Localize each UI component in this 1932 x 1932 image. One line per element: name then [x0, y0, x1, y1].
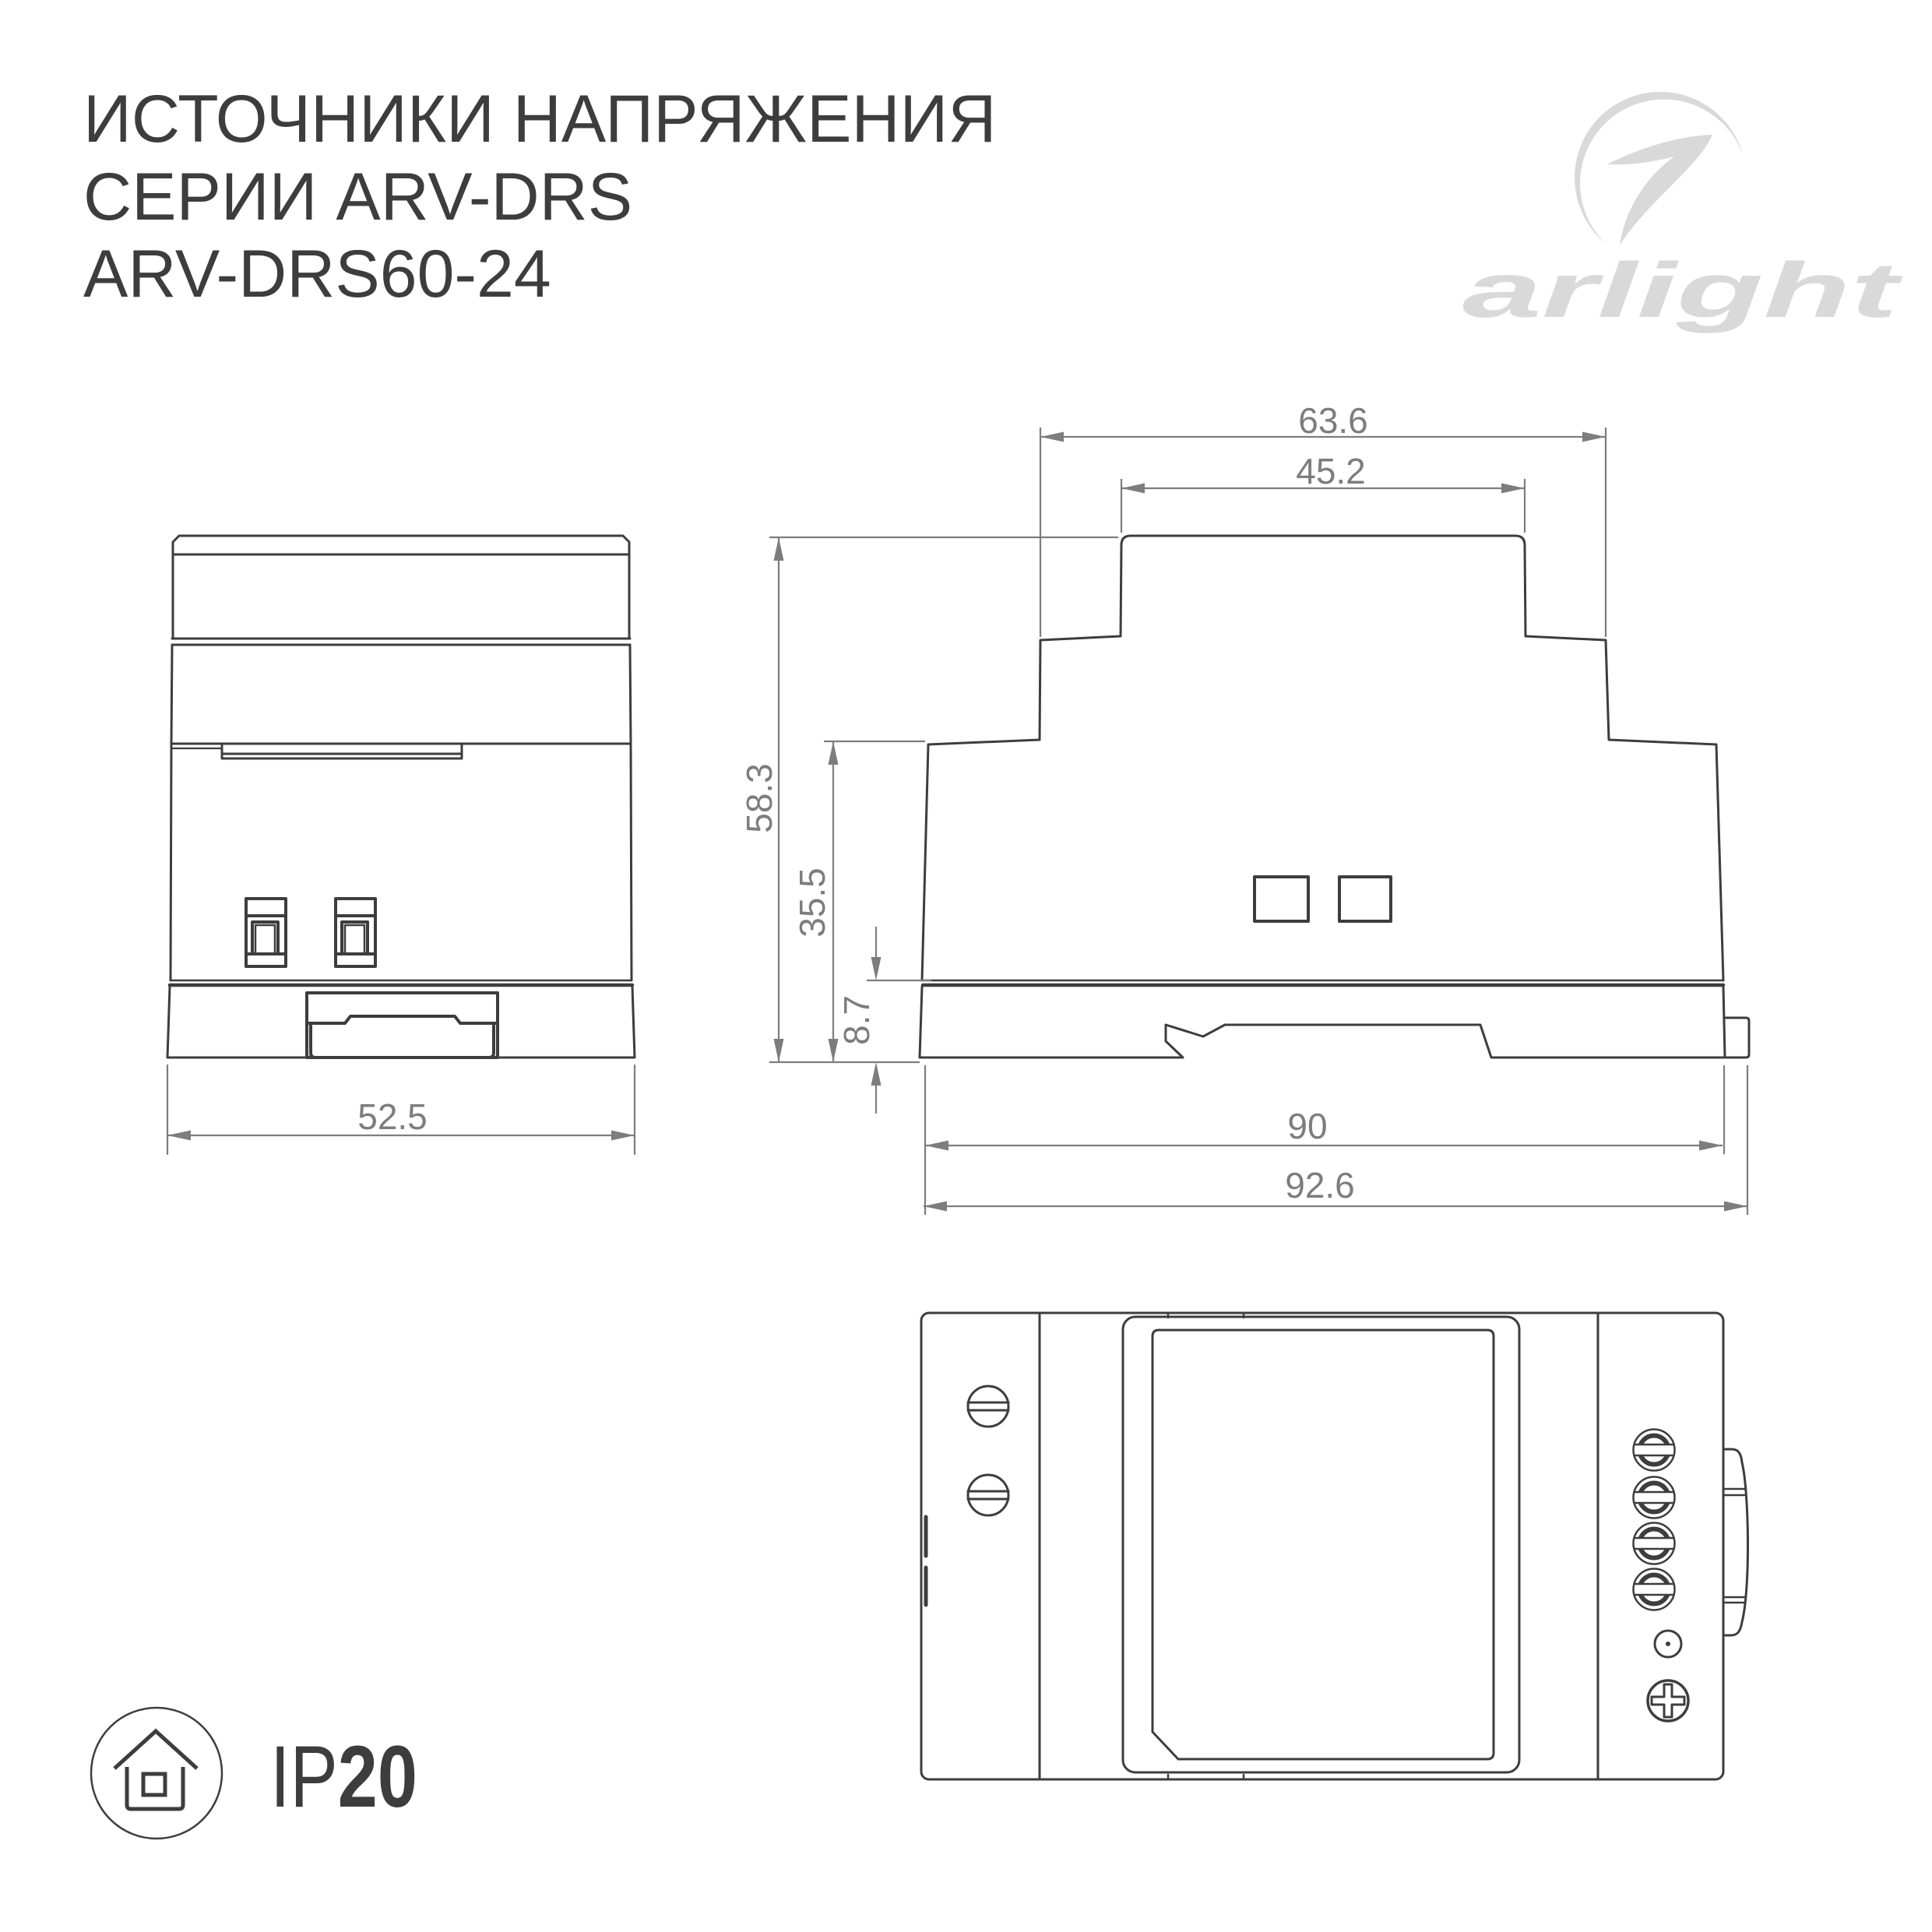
- svg-text:58.3: 58.3: [739, 763, 779, 833]
- svg-text:ARV-DRS60-24: ARV-DRS60-24: [83, 237, 551, 311]
- svg-text:90: 90: [1287, 1106, 1327, 1146]
- svg-text:СЕРИИ ARV-DRS: СЕРИИ ARV-DRS: [83, 160, 632, 234]
- svg-text:IP20: IP20: [270, 1727, 417, 1825]
- svg-text:63.6: 63.6: [1298, 400, 1368, 441]
- svg-text:35.5: 35.5: [792, 867, 832, 938]
- svg-text:8.7: 8.7: [836, 995, 877, 1045]
- svg-text:92.6: 92.6: [1285, 1165, 1355, 1205]
- svg-text:arlight: arlight: [1462, 247, 1903, 333]
- svg-text:ИСТОЧНИКИ НАПРЯЖЕНИЯ: ИСТОЧНИКИ НАПРЯЖЕНИЯ: [83, 82, 996, 157]
- svg-text:45.2: 45.2: [1296, 451, 1366, 491]
- svg-text:52.5: 52.5: [357, 1096, 428, 1137]
